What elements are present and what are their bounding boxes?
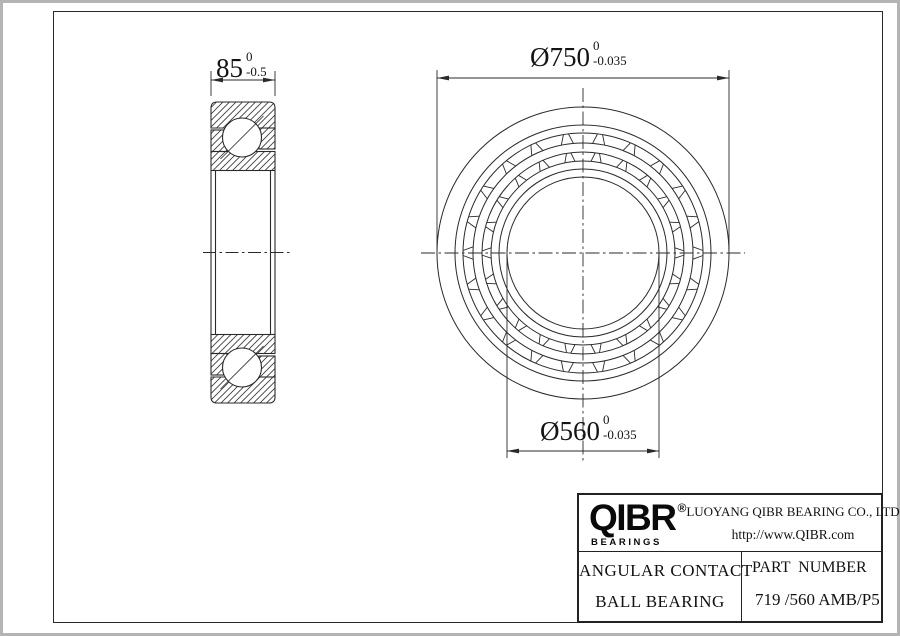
title-block-detail-row: ANGULAR CONTACT BALL BEARING PART NUMBER… [579, 552, 881, 621]
registered-trademark-icon: ® [678, 501, 687, 515]
tolerance-lower: -0.035 [593, 54, 627, 69]
dimension-width: 85 0 -0.5 [216, 55, 267, 84]
tolerance-upper: 0 [593, 39, 627, 54]
dimension-bore-value: Ø560 [540, 418, 600, 445]
title-block: QIBR® BEARINGS LUOYANG QIBR BEARING CO.,… [577, 493, 883, 623]
drawing-sheet: 85 0 -0.5 Ø750 0 -0.035 Ø560 0 -0.035 QI… [0, 0, 900, 636]
dimension-od-tolerance: 0 -0.035 [593, 39, 627, 68]
company-info: LUOYANG QIBR BEARING CO., LTD http://www… [686, 495, 899, 551]
part-number-value: 719 /560 AMB/P5 [755, 590, 881, 610]
qibr-logo: QIBR® BEARINGS [579, 495, 686, 551]
dimension-bore-tolerance: 0 -0.035 [603, 413, 637, 442]
dimension-width-tolerance: 0 -0.5 [246, 50, 267, 79]
company-url: http://www.QIBR.com [686, 527, 899, 543]
part-number-cell: PART NUMBER 719 /560 AMB/P5 [742, 552, 881, 621]
product-line1: ANGULAR CONTACT [579, 561, 741, 581]
tolerance-upper: 0 [246, 50, 267, 65]
dimension-od-value: Ø750 [530, 44, 590, 71]
tolerance-lower: -0.035 [603, 428, 637, 443]
part-number-label: PART NUMBER [752, 559, 881, 577]
dimension-lines [211, 70, 729, 458]
tolerance-lower: -0.5 [246, 65, 267, 80]
company-name: LUOYANG QIBR BEARING CO., LTD [686, 504, 899, 520]
dimension-width-value: 85 [216, 55, 243, 82]
section-view [203, 102, 291, 403]
dimension-outer-diameter: Ø750 0 -0.035 [530, 44, 627, 73]
title-block-header-row: QIBR® BEARINGS LUOYANG QIBR BEARING CO.,… [579, 495, 881, 552]
logo-text: QIBR [589, 497, 676, 538]
product-description: ANGULAR CONTACT BALL BEARING [579, 552, 742, 621]
product-line2: BALL BEARING [579, 592, 741, 612]
front-view [421, 88, 745, 462]
tolerance-upper: 0 [603, 413, 637, 428]
dimension-bore-diameter: Ø560 0 -0.035 [540, 418, 637, 447]
logo-subtitle: BEARINGS [591, 537, 686, 548]
